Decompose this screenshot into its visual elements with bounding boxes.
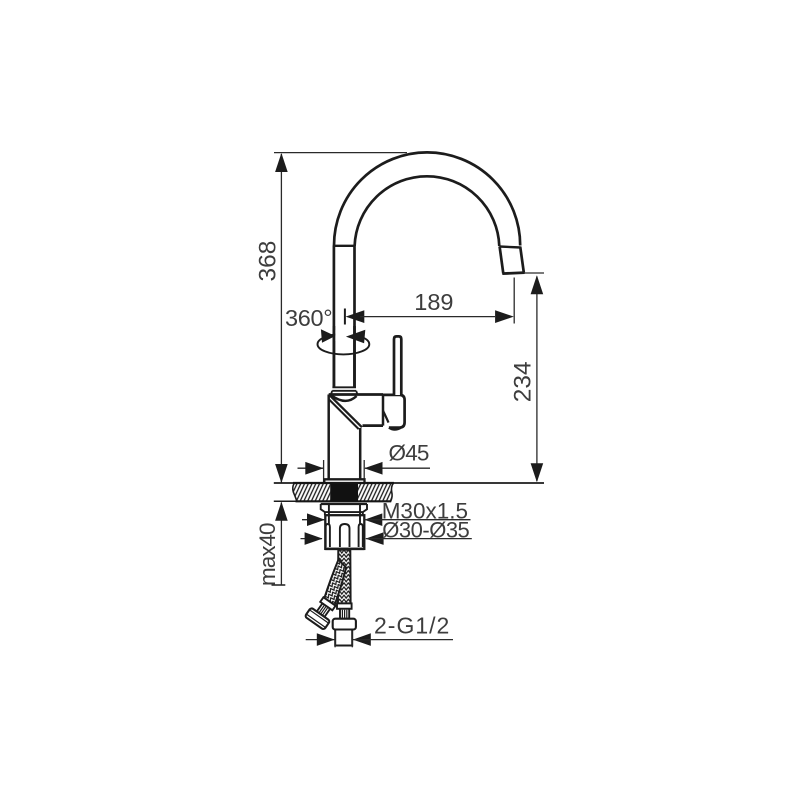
svg-text:Ø45: Ø45 <box>389 440 429 465</box>
svg-text:360°: 360° <box>285 305 332 331</box>
svg-text:Ø30-Ø35: Ø30-Ø35 <box>382 518 469 543</box>
svg-text:max40: max40 <box>255 523 280 586</box>
svg-text:234: 234 <box>510 361 537 402</box>
svg-text:368: 368 <box>254 241 281 282</box>
svg-text:189: 189 <box>414 289 453 315</box>
svg-text:2-G1/2: 2-G1/2 <box>374 613 450 639</box>
